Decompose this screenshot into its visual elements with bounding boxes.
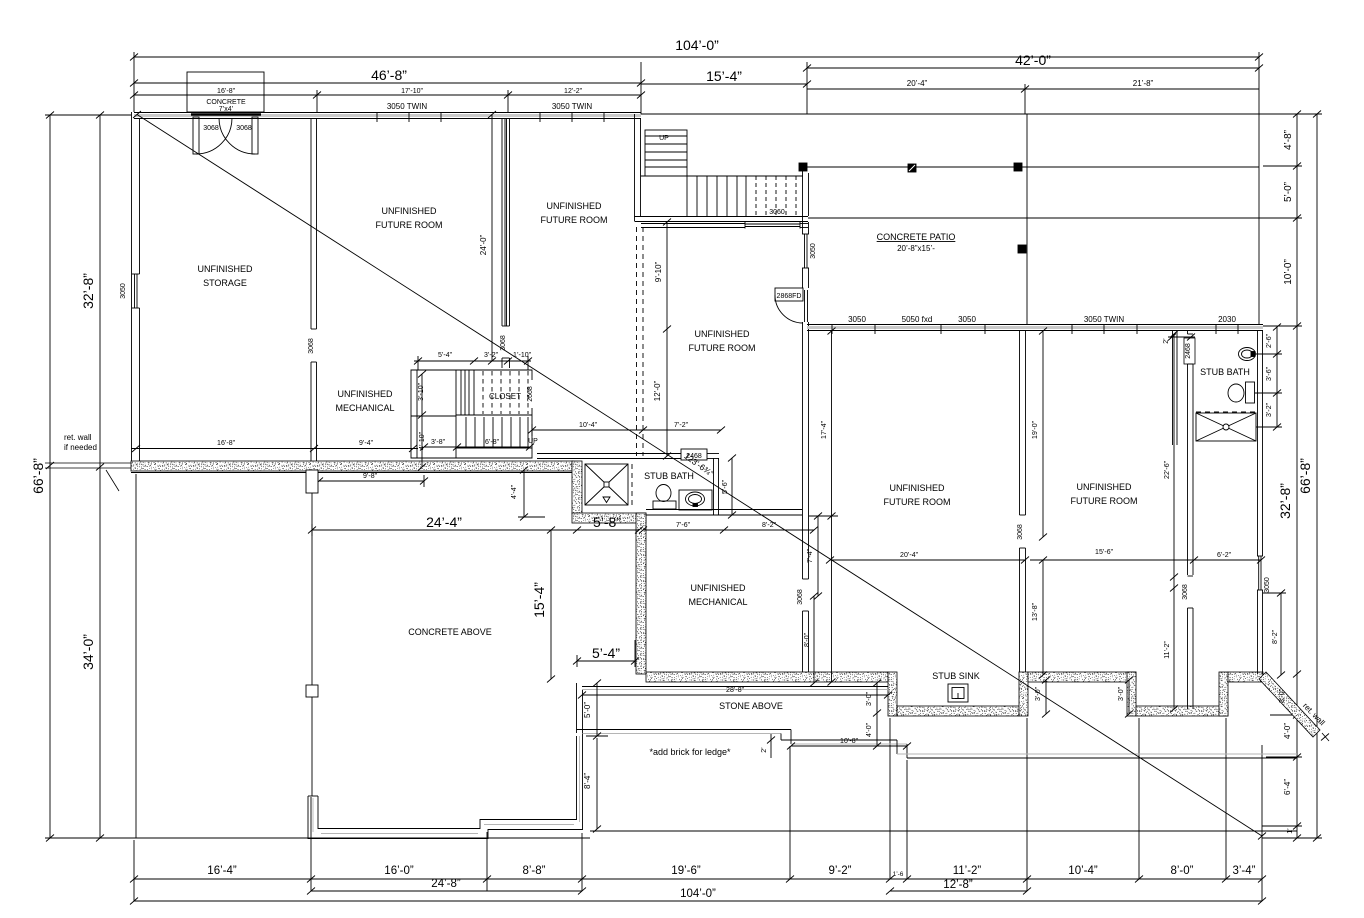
svg-text:9’-2”: 9’-2” <box>828 865 851 877</box>
svg-text:2030: 2030 <box>1218 315 1236 324</box>
svg-text:5’-6”: 5’-6” <box>722 479 729 494</box>
svg-text:CONCRETE: CONCRETE <box>206 99 246 106</box>
svg-text:17’-4”: 17’-4” <box>821 420 828 439</box>
svg-text:3’-8”: 3’-8” <box>431 439 446 446</box>
svg-text:4’-0”: 4’-0” <box>1283 723 1292 739</box>
svg-text:42’-0”: 42’-0” <box>1015 52 1051 68</box>
svg-text:46’-8”: 46’-8” <box>371 67 407 83</box>
svg-text:32’-8”: 32’-8” <box>1277 483 1293 519</box>
svg-text:3’-2”: 3’-2” <box>1266 402 1273 417</box>
svg-text:9’-4”: 9’-4” <box>359 440 374 447</box>
svg-text:20’-4”: 20’-4” <box>900 552 919 559</box>
svg-text:4’-0”: 4’-0” <box>866 722 873 737</box>
svg-text:3’-10”: 3’-10” <box>418 382 425 401</box>
svg-text:2668: 2668 <box>527 386 534 402</box>
svg-text:10’-4”: 10’-4” <box>579 422 598 429</box>
svg-text:11’-2”: 11’-2” <box>953 865 982 877</box>
svg-text:FUTURE ROOM: FUTURE ROOM <box>884 497 951 507</box>
svg-text:3050: 3050 <box>120 283 127 299</box>
svg-text:104’-0”: 104’-0” <box>680 888 716 900</box>
svg-text:8’-8”: 8’-8” <box>522 865 545 877</box>
svg-text:4’-8”: 4’-8” <box>1283 130 1294 150</box>
svg-text:20’-4”: 20’-4” <box>907 79 928 88</box>
svg-text:11’-2”: 11’-2” <box>1164 641 1171 659</box>
svg-text:12’-8”: 12’-8” <box>943 879 973 891</box>
svg-text:12’-2”: 12’-2” <box>564 88 583 95</box>
svg-text:5’-0”: 5’-0” <box>1283 182 1294 202</box>
svg-text:21’-8”: 21’-8” <box>1133 79 1154 88</box>
svg-text:6’-4”: 6’-4” <box>1283 779 1292 795</box>
svg-text:CLOSET: CLOSET <box>489 392 521 401</box>
svg-text:3050: 3050 <box>1264 577 1271 593</box>
svg-text:2’: 2’ <box>761 747 768 753</box>
svg-text:16’-0”: 16’-0” <box>384 865 414 877</box>
svg-text:7’-2”: 7’-2” <box>674 422 689 429</box>
svg-text:16’-4”: 16’-4” <box>207 865 237 877</box>
svg-text:16’-8”: 16’-8” <box>217 440 236 447</box>
svg-text:20’-8”x15’-: 20’-8”x15’- <box>897 244 935 253</box>
svg-text:7’-4”: 7’-4” <box>807 548 814 563</box>
svg-text:3068: 3068 <box>203 125 219 132</box>
svg-text:5’-4”: 5’-4” <box>438 352 453 359</box>
svg-text:8’-0”: 8’-0” <box>1170 865 1193 877</box>
svg-text:15’-4”: 15’-4” <box>531 582 547 618</box>
svg-text:6’-2”: 6’-2” <box>1217 552 1232 559</box>
svg-text:10’-8”: 10’-8” <box>840 738 859 745</box>
svg-text:FUTURE ROOM: FUTURE ROOM <box>689 343 756 353</box>
svg-text:3050: 3050 <box>958 315 976 324</box>
svg-text:24’-8”: 24’-8” <box>431 878 461 890</box>
svg-text:3068: 3068 <box>308 338 315 354</box>
svg-text:7’-6”: 7’-6” <box>676 522 691 529</box>
svg-text:5’-4”: 5’-4” <box>592 645 620 661</box>
svg-text:STONE ABOVE: STONE ABOVE <box>719 701 783 711</box>
svg-text:16’-8”: 16’-8” <box>217 88 236 95</box>
svg-text:3050: 3050 <box>848 315 866 324</box>
svg-text:3’-0”: 3’-0” <box>866 691 873 706</box>
svg-text:FUTURE ROOM: FUTURE ROOM <box>376 220 443 230</box>
svg-text:UNFINISHED: UNFINISHED <box>546 201 602 211</box>
svg-text:5050 fxd: 5050 fxd <box>902 315 933 324</box>
svg-text:8’-2”: 8’-2” <box>762 522 777 529</box>
svg-text:3060: 3060 <box>769 209 785 216</box>
svg-text:3068: 3068 <box>1017 524 1024 540</box>
svg-text:3068: 3068 <box>797 589 804 605</box>
svg-text:4’-10”: 4’-10” <box>419 431 426 450</box>
svg-text:3’-0”: 3’-0” <box>1035 686 1042 701</box>
svg-text:17’-10”: 17’-10” <box>401 88 423 95</box>
svg-text:12’-0”: 12’-0” <box>653 380 662 401</box>
svg-text:3050: 3050 <box>810 243 817 259</box>
svg-text:UNFINISHED: UNFINISHED <box>197 264 253 274</box>
svg-text:FUTURE ROOM: FUTURE ROOM <box>541 215 608 225</box>
svg-text:3050 TWIN: 3050 TWIN <box>552 102 593 111</box>
svg-text:24’-4”: 24’-4” <box>426 514 462 530</box>
svg-text:UNFINISHED: UNFINISHED <box>1076 482 1132 492</box>
svg-text:3068: 3068 <box>500 335 507 351</box>
svg-text:8’-0”: 8’-0” <box>804 632 811 647</box>
svg-text:2’: 2’ <box>1163 338 1170 344</box>
svg-text:10’-4”: 10’-4” <box>1068 865 1098 877</box>
svg-text:MECHANICAL: MECHANICAL <box>688 597 747 607</box>
svg-text:3’-2”: 3’-2” <box>484 352 499 359</box>
svg-text:66’-8”: 66’-8” <box>1297 458 1313 494</box>
svg-text:34’-0”: 34’-0” <box>80 634 96 670</box>
svg-text:MECHANICAL: MECHANICAL <box>335 403 394 413</box>
svg-text:13’-8”: 13’-8” <box>1032 602 1039 621</box>
svg-text:3050 TWIN: 3050 TWIN <box>387 102 428 111</box>
svg-text:7’x4’: 7’x4’ <box>219 106 234 113</box>
svg-text:8’-2”: 8’-2” <box>1272 629 1279 644</box>
svg-text:3’-0”: 3’-0” <box>1118 686 1125 701</box>
svg-text:8’-4”: 8’-4” <box>583 773 592 789</box>
svg-text:10’-0”: 10’-0” <box>1283 259 1294 285</box>
svg-text:STORAGE: STORAGE <box>203 278 247 288</box>
svg-text:1’-10”: 1’-10” <box>513 352 532 359</box>
svg-text:if needed: if needed <box>64 443 97 452</box>
svg-text:1’: 1’ <box>1287 828 1294 834</box>
svg-text:24’-0”: 24’-0” <box>479 234 488 255</box>
svg-text:UNFINISHED: UNFINISHED <box>337 389 393 399</box>
svg-text:UP: UP <box>659 135 669 142</box>
svg-text:66’-8”: 66’-8” <box>30 458 46 494</box>
svg-text:3068: 3068 <box>1182 584 1189 600</box>
svg-text:2’-6”: 2’-6” <box>1266 333 1273 348</box>
svg-text:STUB BATH: STUB BATH <box>1200 367 1250 377</box>
svg-text:19’-6”: 19’-6” <box>671 865 701 877</box>
svg-text:STUB BATH: STUB BATH <box>644 471 694 481</box>
svg-text:5’-8”: 5’-8” <box>593 514 621 530</box>
svg-text:2868FD: 2868FD <box>777 293 802 300</box>
svg-text:3’-4”: 3’-4” <box>1232 865 1255 877</box>
svg-text:CONCRETE PATIO: CONCRETE PATIO <box>877 232 956 242</box>
svg-text:15’-4”: 15’-4” <box>706 68 742 84</box>
svg-text:5’-0”: 5’-0” <box>583 702 592 718</box>
svg-text:28’-8”: 28’-8” <box>726 687 745 694</box>
svg-text:9’-8”: 9’-8” <box>363 473 378 480</box>
svg-text:3068: 3068 <box>236 125 252 132</box>
svg-text:3’-6”: 3’-6” <box>1266 366 1273 381</box>
svg-text:*add brick for ledge*: *add brick for ledge* <box>649 747 731 757</box>
svg-text:UNFINISHED: UNFINISHED <box>381 206 437 216</box>
svg-text:FUTURE ROOM: FUTURE ROOM <box>1071 496 1138 506</box>
svg-text:1’-6: 1’-6 <box>893 871 904 878</box>
svg-text:CONCRETE ABOVE: CONCRETE ABOVE <box>408 627 492 637</box>
svg-text:6’-8”: 6’-8” <box>485 439 500 446</box>
svg-text:UNFINISHED: UNFINISHED <box>690 583 746 593</box>
svg-text:UNFINISHED: UNFINISHED <box>694 329 750 339</box>
svg-text:15’-6”: 15’-6” <box>1095 549 1114 556</box>
svg-text:3050 TWIN: 3050 TWIN <box>1084 315 1125 324</box>
svg-text:3’-0”: 3’-0” <box>1279 688 1286 703</box>
svg-text:ret. wall: ret. wall <box>64 433 92 442</box>
svg-text:UNFINISHED: UNFINISHED <box>889 483 945 493</box>
svg-text:STUB SINK: STUB SINK <box>932 671 980 681</box>
svg-text:4’-4”: 4’-4” <box>511 484 518 499</box>
svg-text:104’-0”: 104’-0” <box>675 37 719 53</box>
svg-text:UP: UP <box>528 438 538 445</box>
svg-text:2468: 2468 <box>1185 343 1192 359</box>
svg-text:19’-0”: 19’-0” <box>1032 420 1039 439</box>
svg-text:9’-10”: 9’-10” <box>654 261 663 282</box>
svg-text:22’-6”: 22’-6” <box>1164 460 1171 479</box>
svg-text:32’-8”: 32’-8” <box>80 273 96 309</box>
